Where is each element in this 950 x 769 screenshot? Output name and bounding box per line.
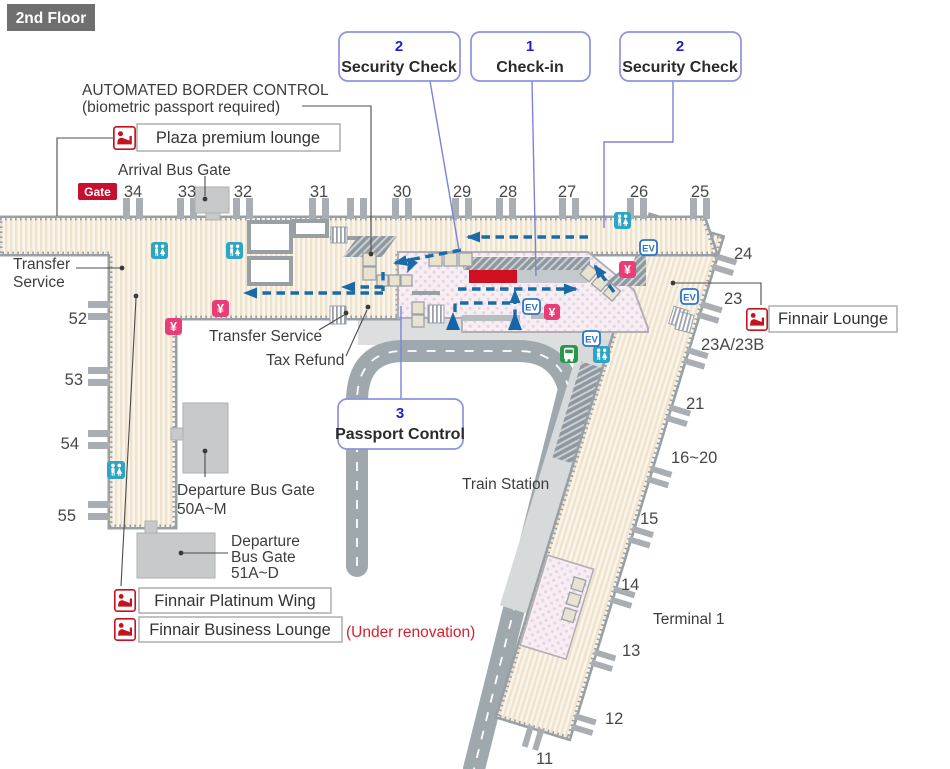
finnair-business-lounge-label: Finnair Business Lounge	[149, 621, 331, 639]
abc-label-line1: AUTOMATED BORDER CONTROL	[82, 82, 329, 99]
departure-bus-gate50-range: 50A~M	[177, 501, 227, 518]
arrival-bus-gate-box	[195, 187, 229, 220]
svg-text:¥: ¥	[170, 320, 177, 334]
stairs-icon	[331, 227, 347, 243]
svg-text:EV: EV	[525, 303, 538, 314]
checkin-counter-red	[469, 270, 517, 283]
svg-text:2nd Floor: 2nd Floor	[16, 10, 87, 27]
gate-label: 12	[605, 710, 623, 728]
bus-stop-icon	[560, 345, 578, 363]
abc-label-line2: (biometric passport required)	[82, 99, 280, 116]
terminal-map-2nd-floor: ¥ ¥ ¥ ¥ EV EV EV EV 34 33 32 31 30 29 28…	[0, 0, 950, 769]
svg-text:Check-in: Check-in	[496, 59, 564, 76]
finnair-lounge-label: Finnair Lounge	[778, 310, 888, 328]
departure-bus-gate51-range: 51A~D	[231, 565, 279, 582]
finnair-platinum-wing-label: Finnair Platinum Wing	[154, 592, 315, 610]
gate-label: 11	[536, 750, 553, 768]
terminal1-label: Terminal 1	[653, 611, 725, 628]
plaza-premium-lounge-label: Plaza premium lounge	[156, 129, 320, 147]
svg-text:Passport Control: Passport Control	[335, 426, 465, 443]
gate-label: 13	[622, 642, 640, 660]
restroom-icon	[151, 242, 168, 259]
svg-text:Gate: Gate	[84, 185, 111, 199]
departure-bus-gate-50-box	[171, 403, 228, 473]
gate-label: 55	[58, 507, 76, 525]
gate-badge: Gate	[78, 183, 117, 200]
callout-security-check-right: 2 Security Check	[620, 32, 741, 81]
svg-text:1: 1	[526, 38, 534, 55]
floor-label: 2nd Floor	[7, 4, 95, 31]
gate-label: 14	[621, 576, 639, 594]
airport-map-canvas: ¥ ¥ ¥ ¥ EV EV EV EV 34 33 32 31 30 29 28…	[0, 0, 950, 769]
lounge-icon	[115, 619, 135, 640]
elevator-icon: EV	[681, 289, 698, 304]
gate-label: 24	[734, 245, 752, 263]
callout-checkin: 1 Check-in	[471, 32, 590, 81]
courtyard	[249, 258, 291, 284]
callout-passport-control: 3 Passport Control	[335, 399, 465, 449]
currency-exchange-icon: ¥	[165, 318, 182, 335]
lounge-icon	[747, 309, 767, 330]
svg-text:EV: EV	[585, 335, 598, 346]
svg-text:2: 2	[395, 38, 403, 55]
under-renovation-label: (Under renovation)	[346, 624, 475, 641]
gate-label: 31	[310, 183, 328, 201]
gate-label: 32	[234, 183, 252, 201]
stairs-icon	[428, 305, 444, 323]
gate-label: 23	[724, 290, 742, 308]
gate-label: 15	[640, 510, 658, 528]
restroom-icon	[107, 461, 125, 479]
svg-text:EV: EV	[642, 244, 655, 255]
gate-label: 25	[691, 183, 709, 201]
transfer-service-left-label: Transfer	[13, 256, 70, 273]
gate-label: 34	[124, 183, 142, 201]
arrival-bus-gate-label: Arrival Bus Gate	[118, 162, 231, 179]
svg-text:¥: ¥	[217, 302, 224, 316]
gate-label: 26	[630, 183, 648, 201]
gate-label: 23A/23B	[701, 336, 764, 354]
gate-label: 33	[178, 183, 196, 201]
train-station-label: Train Station	[462, 476, 549, 493]
left-gate-stubs	[88, 301, 110, 520]
svg-text:Security Check: Security Check	[341, 59, 457, 76]
elevator-icon: EV	[640, 240, 657, 255]
elevator-icon: EV	[583, 331, 600, 346]
callout-security-check-left: 2 Security Check	[339, 32, 460, 81]
gate-label: 21	[686, 395, 704, 413]
departure-bus-gate50-label: Departure Bus Gate	[177, 482, 315, 499]
curb	[462, 315, 520, 321]
gate-label: 27	[558, 183, 576, 201]
svg-text:¥: ¥	[549, 306, 556, 320]
elevator-icon: EV	[523, 299, 540, 314]
restroom-icon	[593, 346, 610, 363]
gate-label: 54	[61, 435, 79, 453]
transfer-service-left-label: Service	[13, 274, 65, 291]
restroom-icon	[226, 242, 243, 259]
departure-bus-gate51-label: Departure	[231, 533, 300, 550]
transfer-service-label: Transfer Service	[209, 328, 322, 345]
svg-text:2: 2	[676, 38, 684, 55]
gate-label: 29	[453, 183, 471, 201]
gate-label: 52	[69, 310, 87, 328]
lounge-icon	[115, 590, 135, 611]
courtyard	[249, 222, 291, 252]
gate-label: 28	[499, 183, 517, 201]
svg-text:3: 3	[396, 405, 404, 422]
gate-label: 53	[65, 371, 83, 389]
currency-exchange-icon: ¥	[544, 304, 560, 320]
checkin-counter-gray	[517, 270, 587, 283]
svg-text:EV: EV	[683, 293, 696, 304]
checkin-counter-row	[463, 257, 590, 270]
gate-label: 16~20	[671, 449, 717, 467]
tax-refund-label: Tax Refund	[266, 352, 344, 369]
currency-exchange-icon: ¥	[619, 261, 636, 278]
courtyard	[294, 221, 327, 236]
svg-text:¥: ¥	[624, 263, 631, 277]
svg-text:Security Check: Security Check	[622, 59, 738, 76]
departure-bus-gate51-label: Bus Gate	[231, 549, 296, 566]
lounge-icon	[114, 127, 135, 149]
gate-label: 30	[393, 183, 411, 201]
restroom-icon	[614, 212, 631, 229]
departure-bus-gate-51-box	[137, 521, 215, 578]
currency-exchange-icon: ¥	[212, 300, 229, 317]
